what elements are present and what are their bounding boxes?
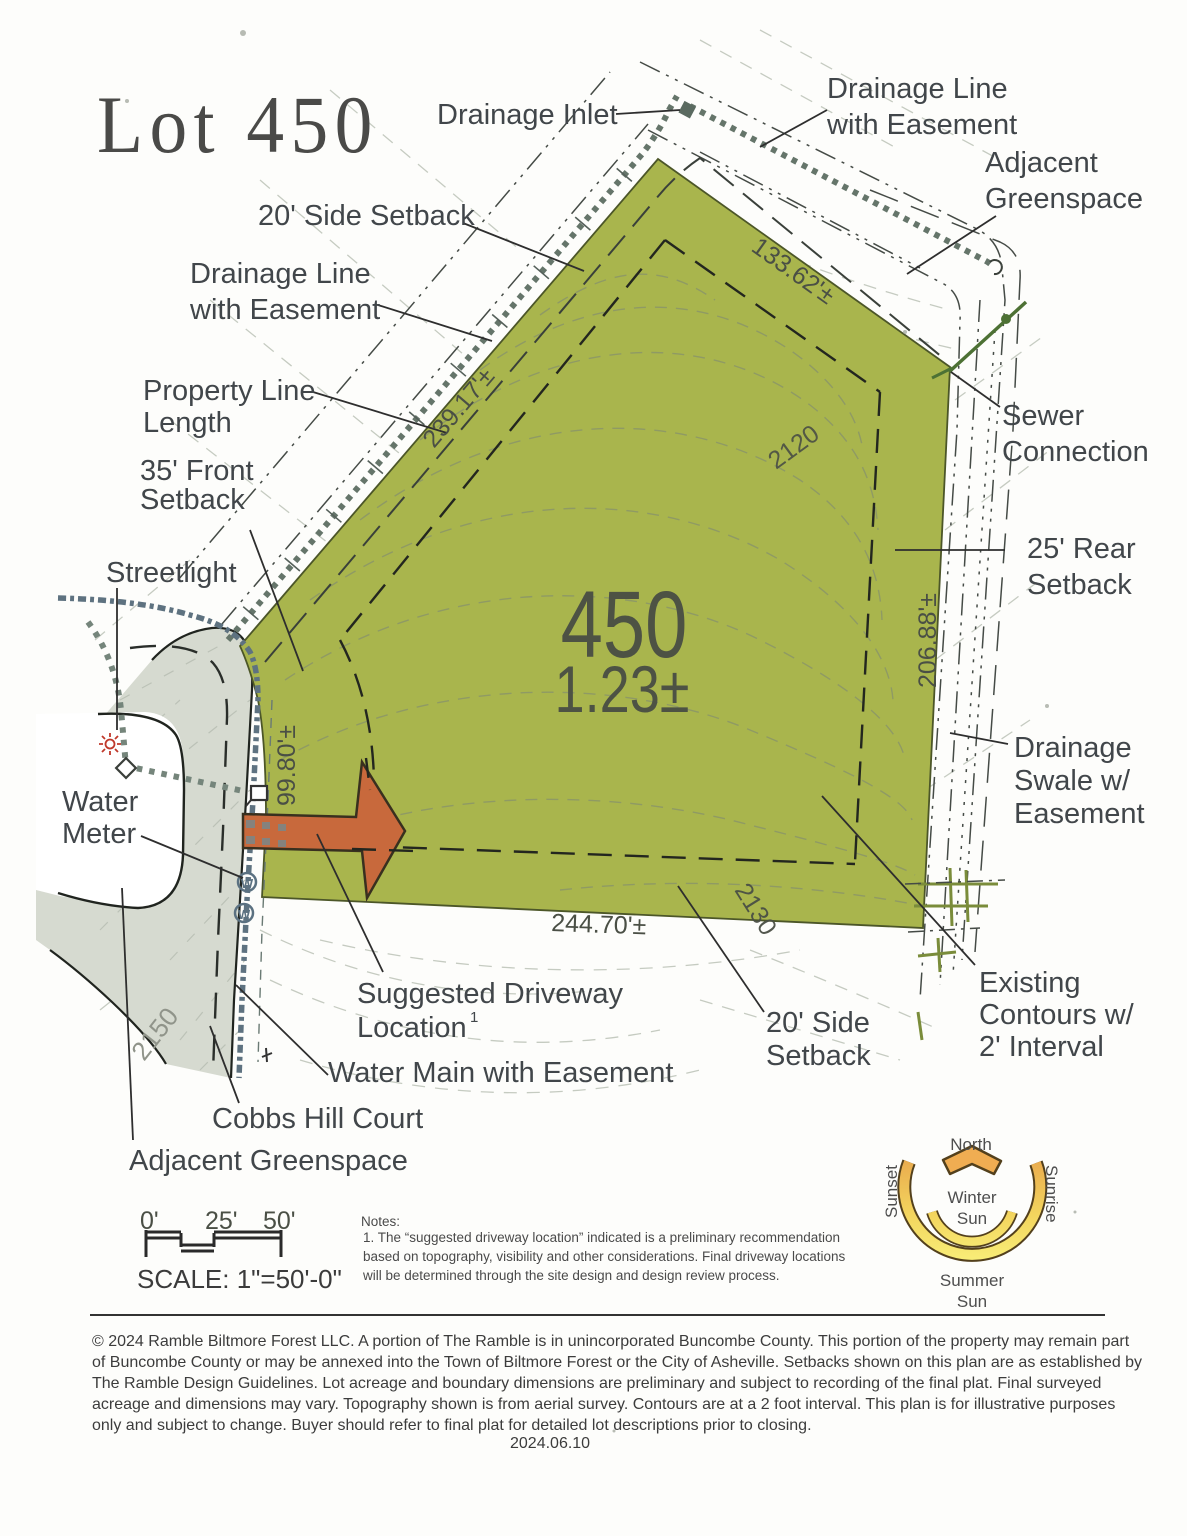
svg-text:only and subject to change. Bu: only and subject to change. Buyer should… <box>92 1417 812 1434</box>
svg-text:Contours w/: Contours w/ <box>979 999 1135 1031</box>
svg-text:Drainage Inlet: Drainage Inlet <box>437 99 618 131</box>
svg-text:2024.06.10: 2024.06.10 <box>510 1435 590 1452</box>
svg-text:35' Front: 35' Front <box>140 455 254 487</box>
svg-text:based on topography, visibilit: based on topography, visibility and othe… <box>363 1249 846 1264</box>
svg-text:Location: Location <box>357 1012 467 1044</box>
svg-text:Length: Length <box>143 407 232 439</box>
svg-text:The Ramble Design Guidelines.: The Ramble Design Guidelines. Lot acreag… <box>92 1375 1101 1392</box>
svg-text:will be determined through the: will be determined through the site desi… <box>362 1268 780 1283</box>
svg-text:North: North <box>950 1135 992 1154</box>
svg-text:Existing: Existing <box>979 967 1081 999</box>
svg-text:25' Rear: 25' Rear <box>1027 533 1136 565</box>
svg-text:Cobbs Hill Court: Cobbs Hill Court <box>212 1103 423 1135</box>
svg-text:Drainage Line: Drainage Line <box>190 258 371 290</box>
svg-text:2' Interval: 2' Interval <box>979 1031 1104 1063</box>
svg-text:Notes:: Notes: <box>361 1214 400 1229</box>
svg-text:Suggested Driveway: Suggested Driveway <box>357 978 623 1010</box>
svg-text:Adjacent Greenspace: Adjacent Greenspace <box>129 1145 408 1177</box>
svg-text:Sewer: Sewer <box>1002 400 1085 432</box>
svg-text:Winter: Winter <box>947 1188 996 1207</box>
svg-text:Water Main with Easement: Water Main with Easement <box>328 1057 673 1089</box>
svg-text:Setback: Setback <box>1027 569 1132 601</box>
svg-text:Lot 450: Lot 450 <box>97 80 379 171</box>
svg-text:Setback: Setback <box>140 484 245 516</box>
svg-text:Setback: Setback <box>766 1040 871 1072</box>
svg-text:© 2024 Ramble Biltmore Forest: © 2024 Ramble Biltmore Forest LLC. A por… <box>92 1333 1130 1350</box>
svg-text:acreage and dimensions may var: acreage and dimensions may vary. Topogra… <box>92 1396 1115 1413</box>
svg-text:Greenspace: Greenspace <box>985 183 1143 215</box>
svg-text:Sunrise: Sunrise <box>1042 1165 1061 1223</box>
svg-text:Drainage: Drainage <box>1014 732 1132 764</box>
svg-text:20' Side Setback: 20' Side Setback <box>258 200 475 232</box>
svg-text:SCALE: 1"=50'-0": SCALE: 1"=50'-0" <box>137 1264 342 1294</box>
svg-text:206.88'±: 206.88'± <box>914 593 942 688</box>
svg-text:with Easement: with Easement <box>189 294 380 326</box>
svg-text:Easement: Easement <box>1014 798 1145 830</box>
svg-text:W: W <box>238 907 251 922</box>
svg-text:Summer: Summer <box>940 1271 1005 1290</box>
svg-text:1: 1 <box>470 1009 478 1026</box>
svg-text:Sun: Sun <box>957 1292 987 1311</box>
svg-text:Streetlight: Streetlight <box>106 557 237 589</box>
svg-text:Water: Water <box>62 786 139 818</box>
svg-text:244.70'±: 244.70'± <box>551 909 647 940</box>
svg-text:Meter: Meter <box>62 818 136 850</box>
svg-text:99.80'±: 99.80'± <box>273 725 301 806</box>
svg-text:1.23±: 1.23± <box>554 652 689 726</box>
svg-text:Adjacent: Adjacent <box>985 147 1098 179</box>
svg-text:of Buncombe County or may be a: of Buncombe County or may be annexed int… <box>92 1354 1142 1371</box>
svg-text:Drainage Line: Drainage Line <box>827 73 1008 105</box>
svg-text:1. The “suggested driveway loc: 1. The “suggested driveway location” ind… <box>363 1230 840 1245</box>
svg-text:Connection: Connection <box>1002 436 1149 468</box>
svg-text:with Easement: with Easement <box>826 109 1017 141</box>
svg-text:Sunset: Sunset <box>882 1165 901 1218</box>
svg-text:Sun: Sun <box>957 1209 987 1228</box>
svg-text:20' Side: 20' Side <box>766 1007 870 1039</box>
svg-text:Swale w/: Swale w/ <box>1014 765 1131 797</box>
svg-text:Property Line: Property Line <box>143 375 316 407</box>
